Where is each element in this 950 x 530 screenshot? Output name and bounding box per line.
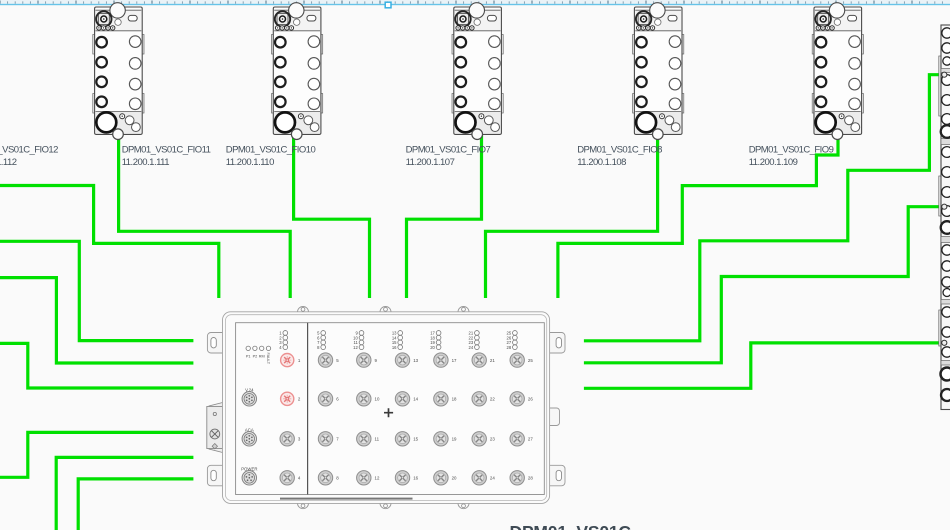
svg-text:15: 15: [413, 437, 418, 442]
svg-text:DPM01_VS01C_FIO11: DPM01_VS01C_FIO11: [122, 145, 211, 156]
svg-text:DPM01_VS01C_FIO7: DPM01_VS01C_FIO7: [406, 145, 491, 156]
svg-text:26: 26: [528, 397, 533, 402]
svg-text:22: 22: [490, 397, 495, 402]
svg-text:DPM01_VS01C_FIO9: DPM01_VS01C_FIO9: [749, 145, 834, 156]
svg-text:12: 12: [375, 476, 380, 481]
svg-text:28: 28: [507, 345, 512, 350]
svg-text:23: 23: [469, 340, 474, 345]
svg-text:11.200.1.112: 11.200.1.112: [0, 157, 17, 168]
svg-text:10: 10: [375, 397, 380, 402]
svg-text:22: 22: [469, 335, 474, 340]
svg-text:11.200.1.107: 11.200.1.107: [406, 157, 455, 168]
svg-text:DPM01_VS01C_FIO10: DPM01_VS01C_FIO10: [226, 145, 316, 156]
svg-text:17: 17: [452, 358, 457, 363]
svg-text:19: 19: [430, 340, 435, 345]
svg-text:26: 26: [507, 335, 512, 340]
svg-text:23: 23: [490, 437, 495, 442]
svg-text:FAULT: FAULT: [266, 353, 270, 365]
svg-text:24: 24: [469, 345, 474, 350]
svg-text:18: 18: [430, 335, 435, 340]
svg-text:17: 17: [430, 331, 435, 336]
svg-text:DPM01_VS01C: DPM01_VS01C: [510, 522, 632, 530]
svg-text:P1: P1: [246, 354, 251, 358]
svg-text:10: 10: [353, 335, 358, 340]
svg-text:27: 27: [528, 437, 533, 442]
svg-text:14: 14: [392, 335, 397, 340]
svg-text:11: 11: [375, 437, 380, 442]
svg-text:12: 12: [353, 345, 358, 350]
svg-text:11.200.1.109: 11.200.1.109: [749, 157, 798, 168]
svg-text:25: 25: [507, 331, 512, 336]
svg-text:20: 20: [430, 345, 435, 350]
svg-text:13: 13: [392, 331, 397, 336]
svg-text:25: 25: [528, 358, 533, 363]
svg-text:21: 21: [490, 358, 495, 363]
svg-text:P2: P2: [253, 354, 258, 358]
svg-text:DPM01_VS01C_FIO8: DPM01_VS01C_FIO8: [577, 145, 662, 156]
svg-text:18: 18: [452, 397, 457, 402]
svg-text:16: 16: [392, 345, 397, 350]
svg-text:28: 28: [528, 476, 533, 481]
svg-text:27: 27: [507, 340, 512, 345]
svg-text:11.200.1.110: 11.200.1.110: [226, 157, 274, 168]
svg-text:20: 20: [452, 476, 457, 481]
svg-text:11.200.1.108: 11.200.1.108: [577, 157, 626, 168]
svg-text:11.200.1.111: 11.200.1.111: [122, 157, 170, 168]
svg-text:14: 14: [413, 397, 418, 402]
svg-text:19: 19: [452, 437, 457, 442]
svg-text:21: 21: [469, 331, 474, 336]
svg-text:DPM01_VS01C_FIO12: DPM01_VS01C_FIO12: [0, 145, 58, 156]
svg-text:RM: RM: [259, 354, 265, 358]
svg-text:16: 16: [413, 476, 418, 481]
svg-text:13: 13: [413, 358, 418, 363]
svg-text:15: 15: [392, 340, 397, 345]
svg-text:24: 24: [490, 476, 495, 481]
svg-text:11: 11: [353, 340, 358, 345]
